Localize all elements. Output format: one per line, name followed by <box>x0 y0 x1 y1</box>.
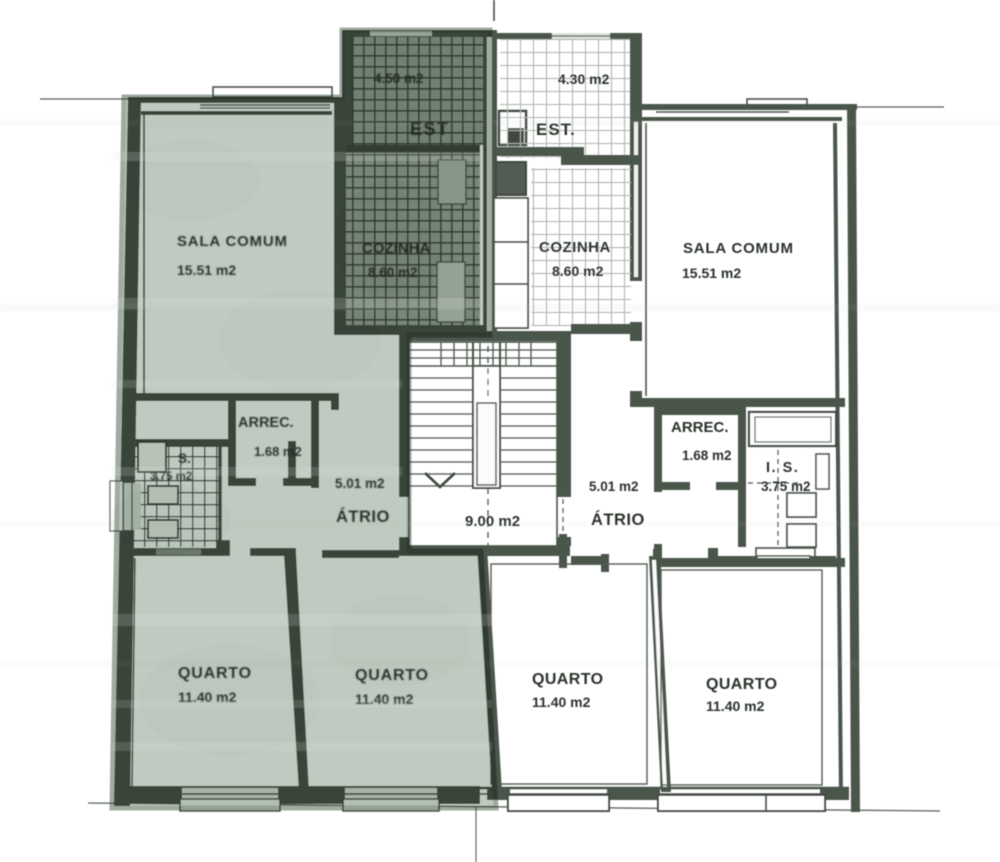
svg-text:5.01 m2: 5.01 m2 <box>589 479 639 494</box>
svg-text:11.40 m2: 11.40 m2 <box>532 694 591 710</box>
svg-text:COZINHA: COZINHA <box>539 239 611 256</box>
svg-text:8.60 m2: 8.60 m2 <box>552 263 604 279</box>
svg-text:SALA COMUM: SALA COMUM <box>683 240 794 257</box>
svg-text:15.51 m2: 15.51 m2 <box>682 265 741 281</box>
svg-text:QUARTO: QUARTO <box>706 676 777 693</box>
svg-text:4.30 m2: 4.30 m2 <box>558 71 610 87</box>
svg-text:11.40 m2: 11.40 m2 <box>706 698 765 714</box>
svg-text:QUARTO: QUARTO <box>532 671 603 688</box>
svg-text:1.68 m2: 1.68 m2 <box>682 448 732 463</box>
svg-text:ARREC.: ARREC. <box>671 419 729 436</box>
svg-text:I. S.: I. S. <box>766 460 799 476</box>
svg-text:3.75 m2: 3.75 m2 <box>761 479 811 494</box>
